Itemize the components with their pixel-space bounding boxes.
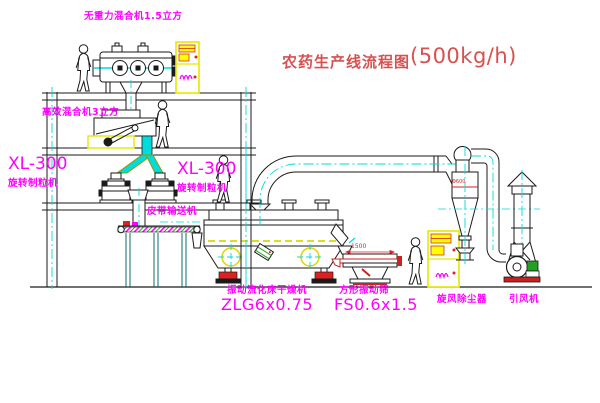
control-cabinet-bottom [428, 231, 459, 287]
title-chinese: 农药生产线流程图 [282, 44, 410, 72]
dim-screen-length: 1500 [351, 244, 366, 250]
worker-1 [76, 45, 91, 91]
label-fan: 引风机 [509, 295, 539, 305]
worker-2 [155, 101, 170, 147]
label-high-eff-mixer: 高效混合机3立方 [42, 108, 119, 118]
dryer-feet [216, 268, 336, 283]
fluid-bed-dryer [204, 200, 355, 283]
dryer-nozzles [213, 200, 329, 210]
granulators [99, 173, 177, 230]
mixer-hubs [113, 61, 164, 76]
label-granulator-left-name: 旋转制粒机 [8, 179, 58, 189]
vibrating-screen [332, 246, 402, 285]
label-cyclone: 旋风除尘器 [437, 295, 487, 305]
fan-motor [527, 261, 538, 271]
label-granulator-left-model: XL-300 [8, 156, 67, 173]
diagram-title: 农药生产线流程图 (500kg/h) [282, 44, 517, 72]
label-granulator-right-name: 旋转制粒机 [177, 184, 227, 194]
dim-line-1500 [346, 251, 394, 254]
granulator-right [143, 181, 177, 203]
label-screen-model: FS0.6x1.5 [334, 297, 418, 313]
granulator-left [99, 181, 133, 203]
control-cabinet-top [176, 42, 199, 93]
fan-base [504, 277, 540, 282]
induced-draft-fan [504, 244, 540, 282]
label-granulator-right-model: XL-300 [177, 161, 236, 178]
worker-4 [408, 238, 423, 284]
title-capacity: (500kg/h) [410, 44, 517, 68]
label-dryer-model: ZLG6x0.75 [221, 297, 313, 313]
flow-diagram-page: 农药生产线流程图 (500kg/h) 无重力混合机1.5立方 高效混合机3立方 … [0, 0, 600, 403]
label-belt-conveyor: 皮带输送机 [147, 207, 197, 217]
label-gravity-mixer: 无重力混合机1.5立方 [84, 12, 182, 22]
dim-cyclone-dia: Φ600 [452, 180, 465, 185]
